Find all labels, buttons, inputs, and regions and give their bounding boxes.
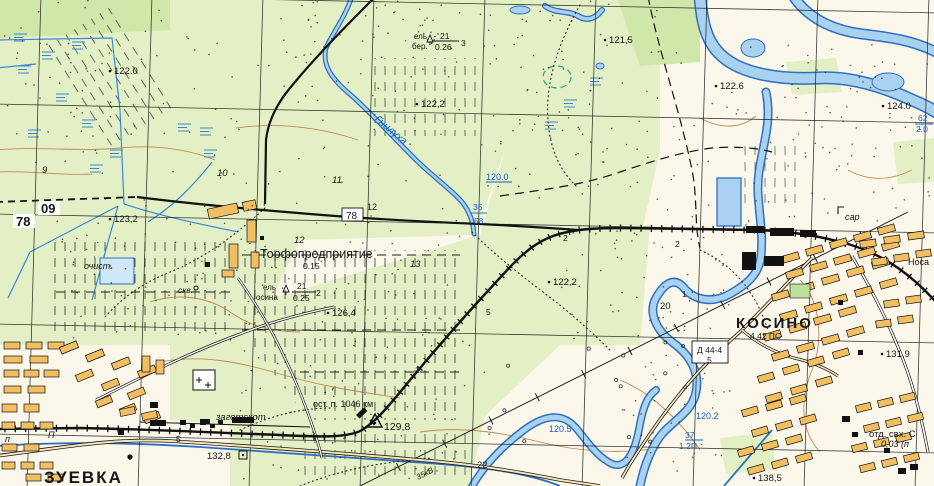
map-label: п	[5, 434, 10, 444]
map-label: 78	[16, 214, 30, 229]
map-label: 21	[440, 31, 450, 41]
map-label: Торфопредприятие	[260, 247, 373, 261]
map-label: 10	[217, 168, 228, 179]
map-label: ост. п. 1046 км	[313, 399, 373, 409]
map-label: ель	[263, 283, 276, 292]
map-label: 62	[918, 113, 928, 123]
map-label: 12	[294, 235, 305, 246]
map-label: 1	[415, 365, 420, 375]
map-label: 2	[316, 288, 321, 298]
map-label: 12	[367, 202, 377, 212]
map-label: 120.2	[696, 411, 719, 421]
map-label: 132,8	[207, 451, 231, 462]
map-label: 2.0	[916, 124, 928, 134]
map-label: 120.5	[549, 424, 572, 434]
map-label: 20	[660, 301, 671, 312]
map-label: 121,5	[609, 35, 633, 46]
map-label: 129,8	[384, 421, 410, 433]
map-label: 0,03 (п	[881, 439, 909, 449]
map-label: 22	[477, 460, 488, 471]
map-label: 122.0	[114, 66, 138, 77]
map-label: ЗУЕВКА	[44, 468, 123, 486]
map-label: КОСИНО	[736, 315, 813, 332]
map-label: 123,2	[114, 214, 138, 225]
map-label: 9	[42, 165, 48, 176]
map-label: 0.26	[435, 42, 452, 52]
map-label: ель	[414, 32, 427, 41]
map-label: 1.2П	[679, 441, 697, 451]
map-label: 13	[410, 259, 421, 270]
map-label: Носа	[908, 257, 929, 267]
map-label: очист.	[84, 261, 113, 271]
map-label: 131,9	[886, 349, 910, 360]
map-label: 138,5	[758, 473, 782, 484]
map-label: 5	[176, 434, 181, 444]
map-label: П	[48, 430, 55, 440]
map-label: 124.0	[887, 101, 911, 112]
map-label: 09	[41, 201, 55, 216]
map-label: 58	[474, 216, 484, 226]
map-label: 35	[473, 202, 483, 212]
map-label: скв.	[178, 285, 193, 295]
map-label: осина	[256, 293, 278, 302]
map-label: 126,4	[332, 308, 356, 319]
map-label: 122.6	[720, 81, 744, 92]
map-label: 21	[297, 281, 307, 291]
map-label: сар	[845, 212, 860, 222]
map-label: 11	[332, 175, 342, 186]
map-label: 120.0	[486, 172, 509, 182]
map-label: 2	[675, 239, 680, 249]
map-label: 2	[563, 233, 568, 243]
map-label: 78	[346, 211, 358, 222]
map-label: 0.15	[303, 261, 320, 271]
map-label: бер.	[412, 42, 428, 51]
map-label: 37	[685, 430, 695, 440]
map-label: 5	[486, 307, 491, 317]
map-label: 122,2	[553, 277, 577, 288]
map-label: 3	[461, 38, 466, 48]
map-canvas[interactable]: 122.0121,5122,2122.6124.0123,2126,4122,2…	[0, 0, 934, 486]
map-label: 1	[682, 289, 687, 299]
map-label: Д 44-4	[697, 345, 722, 355]
topographic-map[interactable]: 122.0121,5122,2122.6124.0123,2126,4122,2…	[0, 0, 934, 486]
map-label: 122,2	[421, 99, 445, 110]
map-label: 5	[707, 355, 712, 365]
map-label: 4.42 ПС	[750, 331, 781, 341]
map-label: 0.25	[293, 293, 310, 303]
map-label: заготскот	[215, 412, 266, 423]
